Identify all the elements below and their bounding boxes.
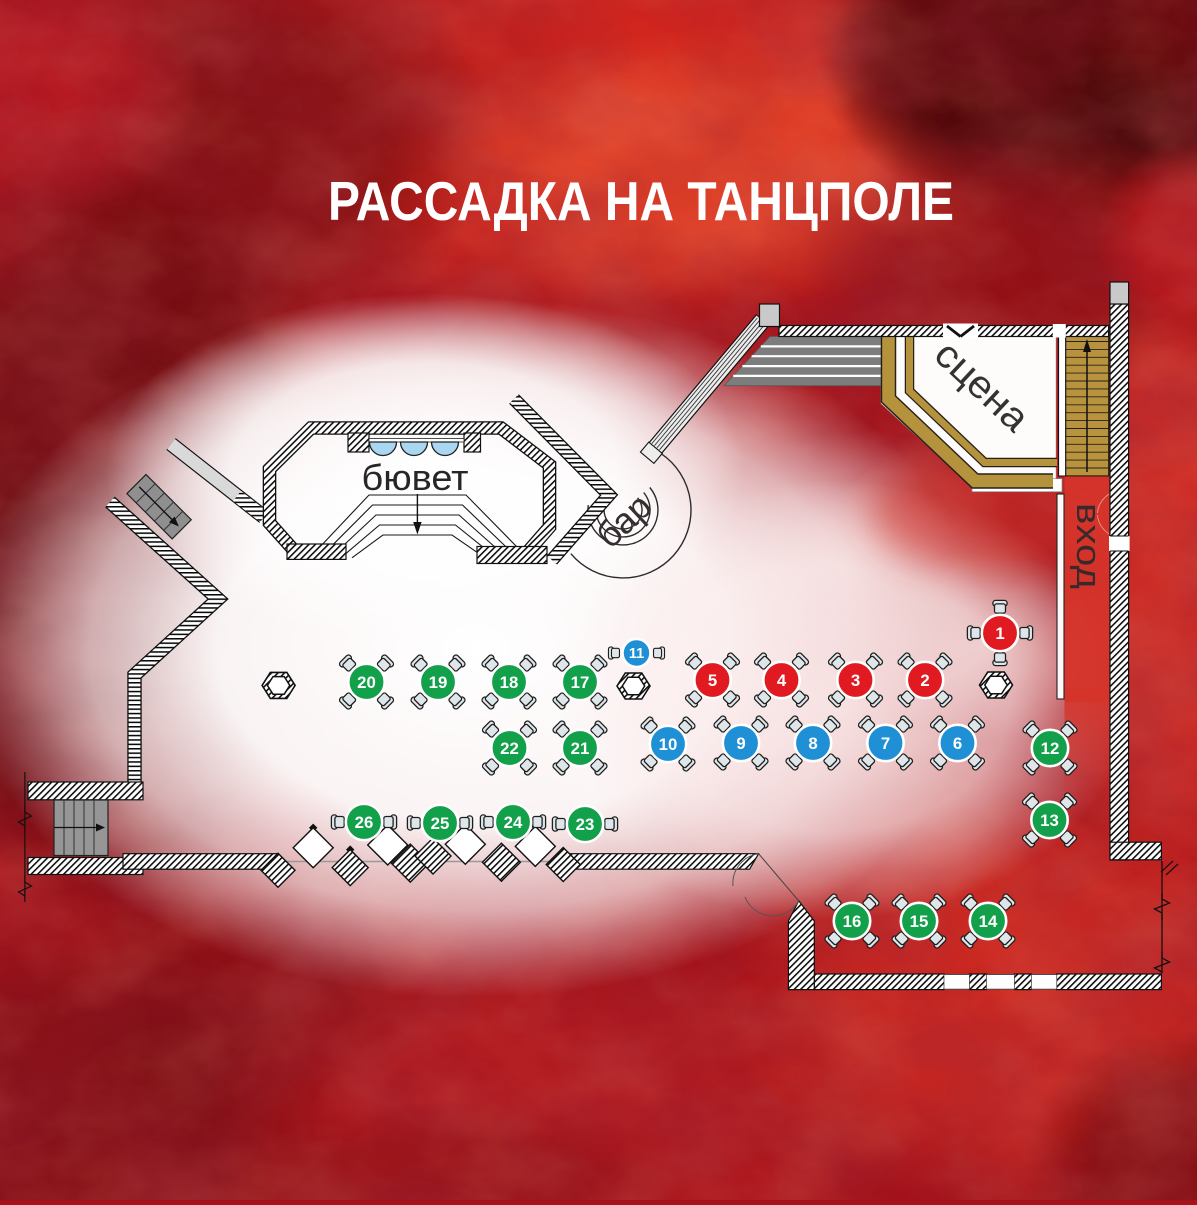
svg-text:18: 18 xyxy=(500,673,519,692)
svg-text:13: 13 xyxy=(1040,811,1059,830)
svg-text:17: 17 xyxy=(571,673,590,692)
svg-text:14: 14 xyxy=(979,912,998,931)
svg-text:11: 11 xyxy=(629,646,644,662)
svg-text:10: 10 xyxy=(659,735,678,754)
svg-text:24: 24 xyxy=(504,813,523,832)
svg-text:7: 7 xyxy=(881,734,890,753)
svg-text:6: 6 xyxy=(953,734,962,753)
svg-text:16: 16 xyxy=(843,912,862,931)
svg-text:15: 15 xyxy=(910,912,929,931)
svg-text:вход: вход xyxy=(1069,503,1107,589)
svg-text:РАССАДКА НА ТАНЦПОЛЕ: РАССАДКА НА ТАНЦПОЛЕ xyxy=(328,170,954,232)
svg-text:8: 8 xyxy=(808,734,817,753)
svg-text:23: 23 xyxy=(576,815,595,834)
svg-text:12: 12 xyxy=(1041,739,1060,758)
svg-text:9: 9 xyxy=(736,734,745,753)
svg-text:3: 3 xyxy=(851,671,860,690)
svg-text:2: 2 xyxy=(920,671,929,690)
svg-text:4: 4 xyxy=(777,671,787,690)
svg-text:22: 22 xyxy=(500,739,519,758)
svg-text:25: 25 xyxy=(431,814,450,833)
svg-text:5: 5 xyxy=(708,671,717,690)
svg-text:бювет: бювет xyxy=(362,457,469,498)
svg-text:20: 20 xyxy=(357,673,376,692)
svg-text:26: 26 xyxy=(355,813,374,832)
svg-text:19: 19 xyxy=(429,673,448,692)
svg-text:1: 1 xyxy=(995,624,1004,643)
svg-text:21: 21 xyxy=(571,739,590,758)
